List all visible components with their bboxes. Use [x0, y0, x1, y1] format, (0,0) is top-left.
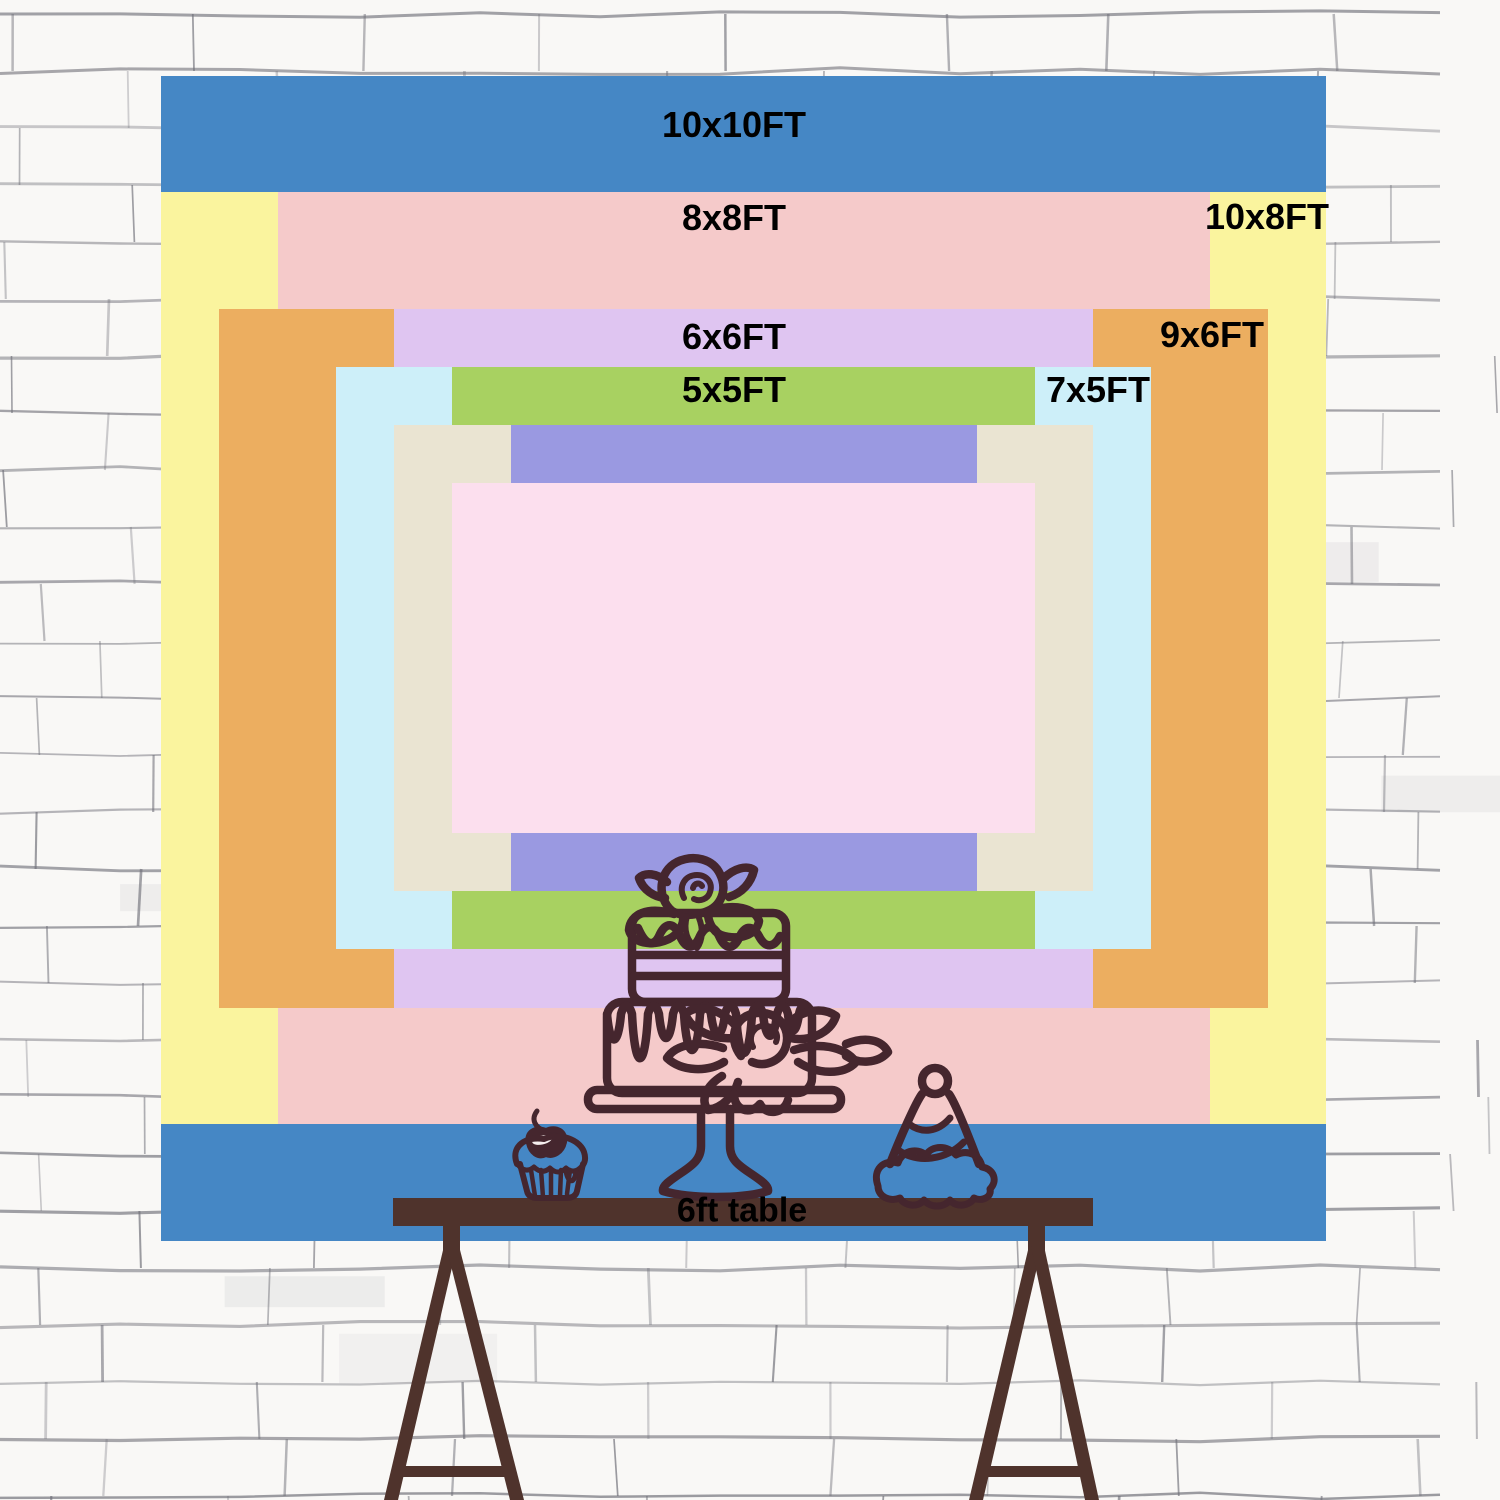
- backdrop-size-chart: 10x10FT10x8FT8x8FT9x6FT6x6FT7x5FT5x5FT6x…: [0, 0, 1500, 1500]
- table-size-label: 6ft table: [677, 1192, 807, 1231]
- rose-center: [693, 884, 702, 888]
- trestle-leg: [384, 1246, 457, 1500]
- party-table-illustration: [0, 0, 1500, 1500]
- cake-stand-pedestal: [663, 1109, 768, 1197]
- rose-bud-right: [723, 868, 754, 897]
- trestle-crossbar: [397, 1466, 505, 1477]
- cupcake-illustration: [515, 1111, 585, 1198]
- trestle-crossbar: [982, 1466, 1090, 1477]
- party-hat-illustration: [876, 1068, 994, 1206]
- trestle-leg: [446, 1246, 524, 1500]
- right-trestle-legs: [969, 1222, 1099, 1500]
- hat-stripe: [909, 1118, 950, 1130]
- trestle-leg: [1031, 1246, 1099, 1500]
- cake-illustration: [588, 858, 888, 1197]
- hat-pompom: [922, 1068, 948, 1094]
- trestle-leg: [969, 1246, 1042, 1500]
- table-and-trestles: [384, 1198, 1099, 1500]
- left-trestle-legs: [384, 1222, 524, 1500]
- rose-sprig: [685, 916, 701, 948]
